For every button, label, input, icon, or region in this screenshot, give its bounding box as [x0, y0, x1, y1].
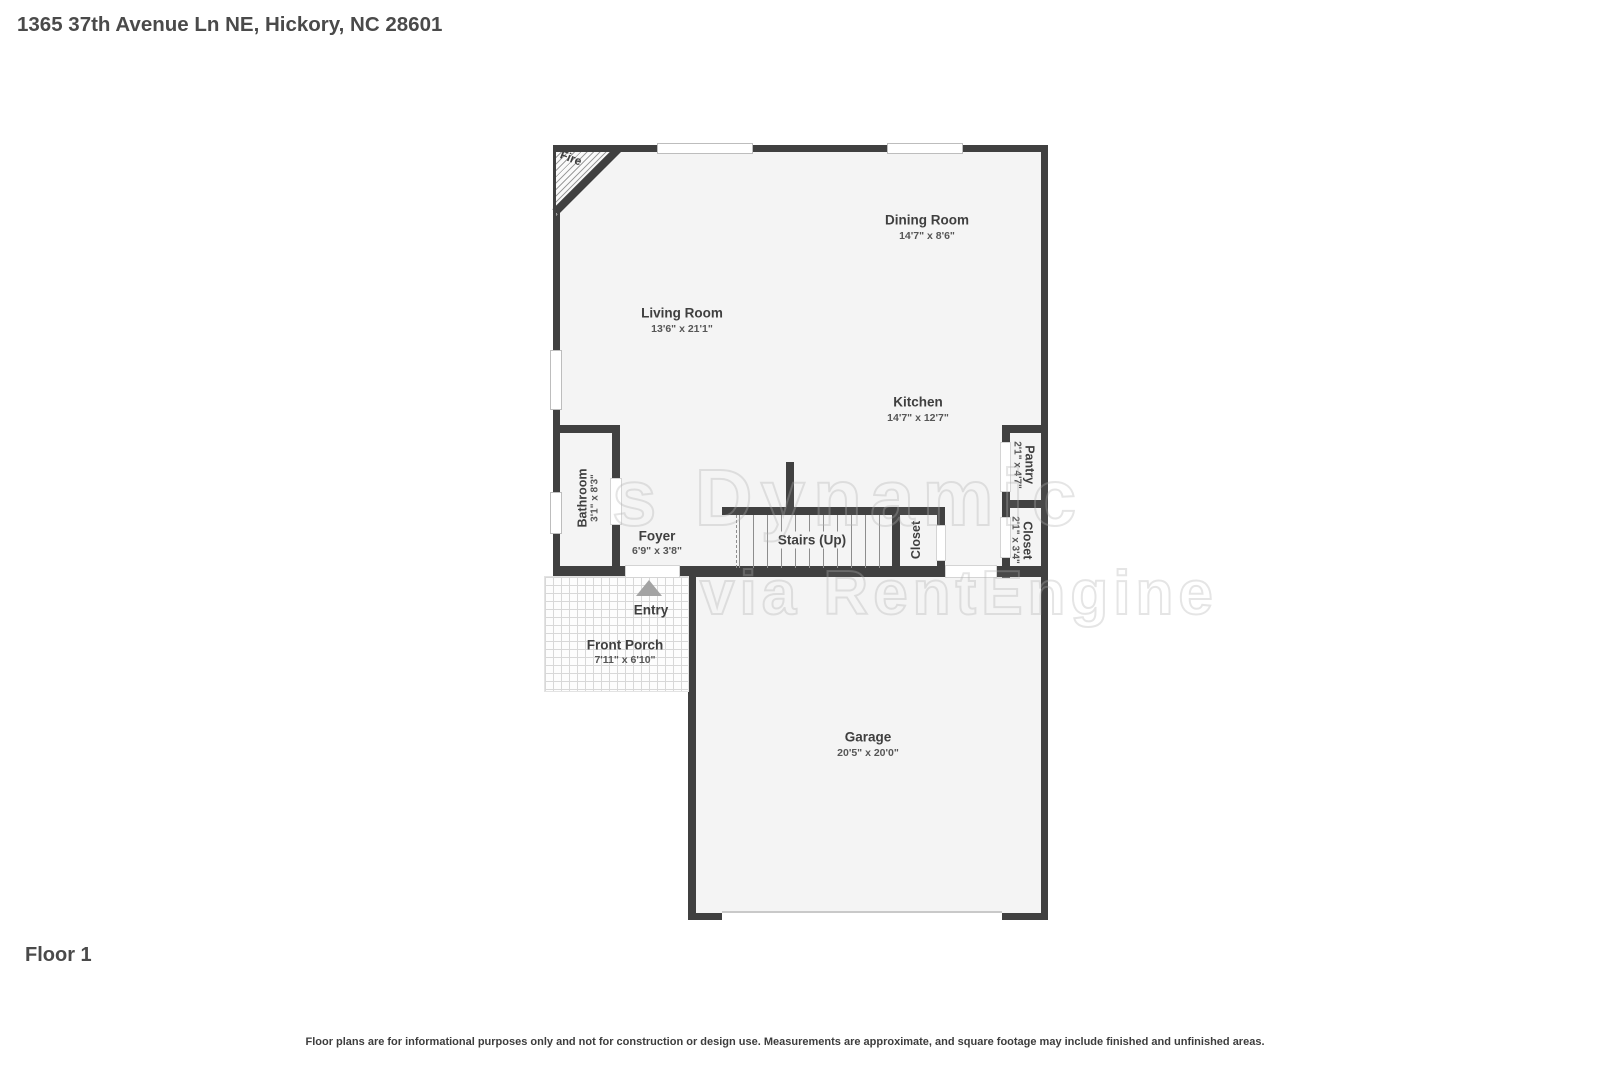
floorplan: Fire Dining Room 14'7" x 8'6" Living Roo… — [0, 0, 1600, 1067]
stairs-stub-wall — [786, 462, 794, 515]
room-label-dining-room: Dining Room — [885, 213, 969, 228]
pantry-door-opening — [1000, 442, 1011, 492]
garage-wall-bottom-segment — [1002, 913, 1048, 920]
stairs-closet-wall-right — [937, 561, 945, 577]
garage-wall-left — [688, 573, 696, 920]
window-marker — [887, 143, 963, 154]
entry-door-opening — [625, 565, 680, 578]
pantry-name: Pantry — [1023, 441, 1037, 489]
room-label-living-room: Living Room — [641, 306, 723, 321]
stairs-wall-top — [722, 507, 945, 515]
hall-closet-name: Closet — [1021, 516, 1035, 564]
garage-door-opening — [722, 911, 1002, 923]
stairs-closet-wall-left — [892, 515, 900, 577]
room-dims-front-porch: 7'11" x 6'10" — [594, 654, 655, 666]
bathroom-wall-right — [612, 525, 620, 577]
room-label-stairs: Stairs (Up) — [774, 532, 850, 549]
room-dims-kitchen: 14'7" x 12'7" — [887, 412, 949, 424]
window-marker — [550, 350, 562, 410]
pantry-dims: 2'1" x 4'7" — [1012, 441, 1023, 489]
disclaimer-text: Floor plans are for informational purpos… — [0, 1036, 1570, 1048]
room-label-stairs-closet: Closet — [909, 521, 923, 559]
room-label-entry: Entry — [634, 603, 669, 618]
room-dims-garage: 20'5" x 20'0" — [837, 747, 899, 759]
window-marker — [657, 143, 753, 154]
bathroom-wall-right — [612, 425, 620, 478]
pantry-wall-left — [1002, 425, 1010, 442]
entry-arrow-icon — [636, 580, 662, 596]
bathroom-wall-top — [553, 425, 620, 433]
room-label-kitchen: Kitchen — [893, 395, 943, 410]
stair-edge-line — [736, 515, 737, 568]
bathroom-door-opening — [610, 478, 622, 525]
bathroom-name: Bathroom — [576, 468, 590, 527]
room-dims-dining-room: 14'7" x 8'6" — [899, 230, 955, 242]
room-label-bathroom: Bathroom 3'1" x 8'3" — [576, 468, 601, 527]
room-dims-living-room: 13'6" x 21'1" — [651, 323, 713, 335]
pantry-closet-divider — [1002, 500, 1048, 508]
bathroom-dims: 3'1" x 8'3" — [590, 468, 601, 527]
room-dims-foyer: 6'9" x 3'8" — [632, 545, 682, 557]
garage-entry-door-opening — [945, 565, 997, 578]
garage-wall-bottom-segment — [688, 913, 722, 920]
room-label-front-porch: Front Porch — [587, 638, 664, 653]
window-marker — [550, 492, 562, 534]
garage-floor-area — [692, 576, 1044, 916]
room-label-foyer: Foyer — [639, 529, 676, 544]
floor-label: Floor 1 — [25, 944, 92, 967]
room-label-hall-closet: Closet 2'1" x 3'4" — [1010, 516, 1035, 564]
wall-right — [1041, 145, 1048, 920]
wall-top — [553, 145, 1048, 152]
stairs-closet-wall-right — [937, 515, 945, 525]
room-label-garage: Garage — [845, 730, 892, 745]
room-label-pantry: Pantry 2'1" x 4'7" — [1012, 441, 1037, 489]
stairs-closet-door-opening — [936, 525, 946, 561]
stairs-closet-name: Closet — [909, 521, 923, 559]
hall-closet-dims: 2'1" x 3'4" — [1010, 516, 1021, 564]
front-porch-tile-area — [545, 577, 688, 691]
